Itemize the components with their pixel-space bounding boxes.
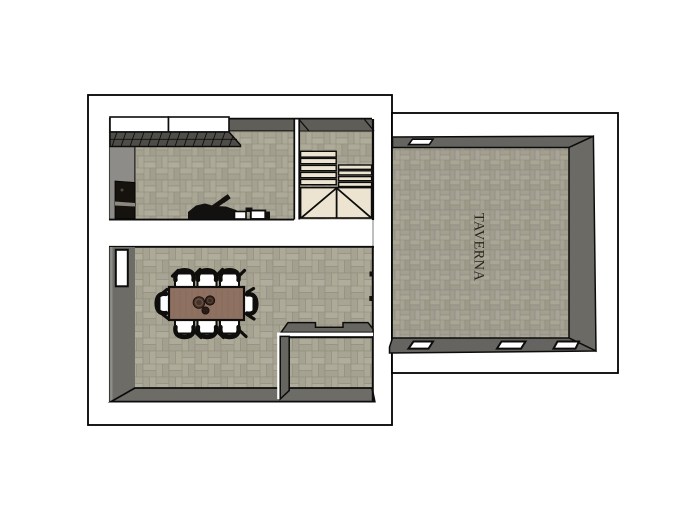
svg-text:TAVERNA: TAVERNA [471, 213, 487, 282]
